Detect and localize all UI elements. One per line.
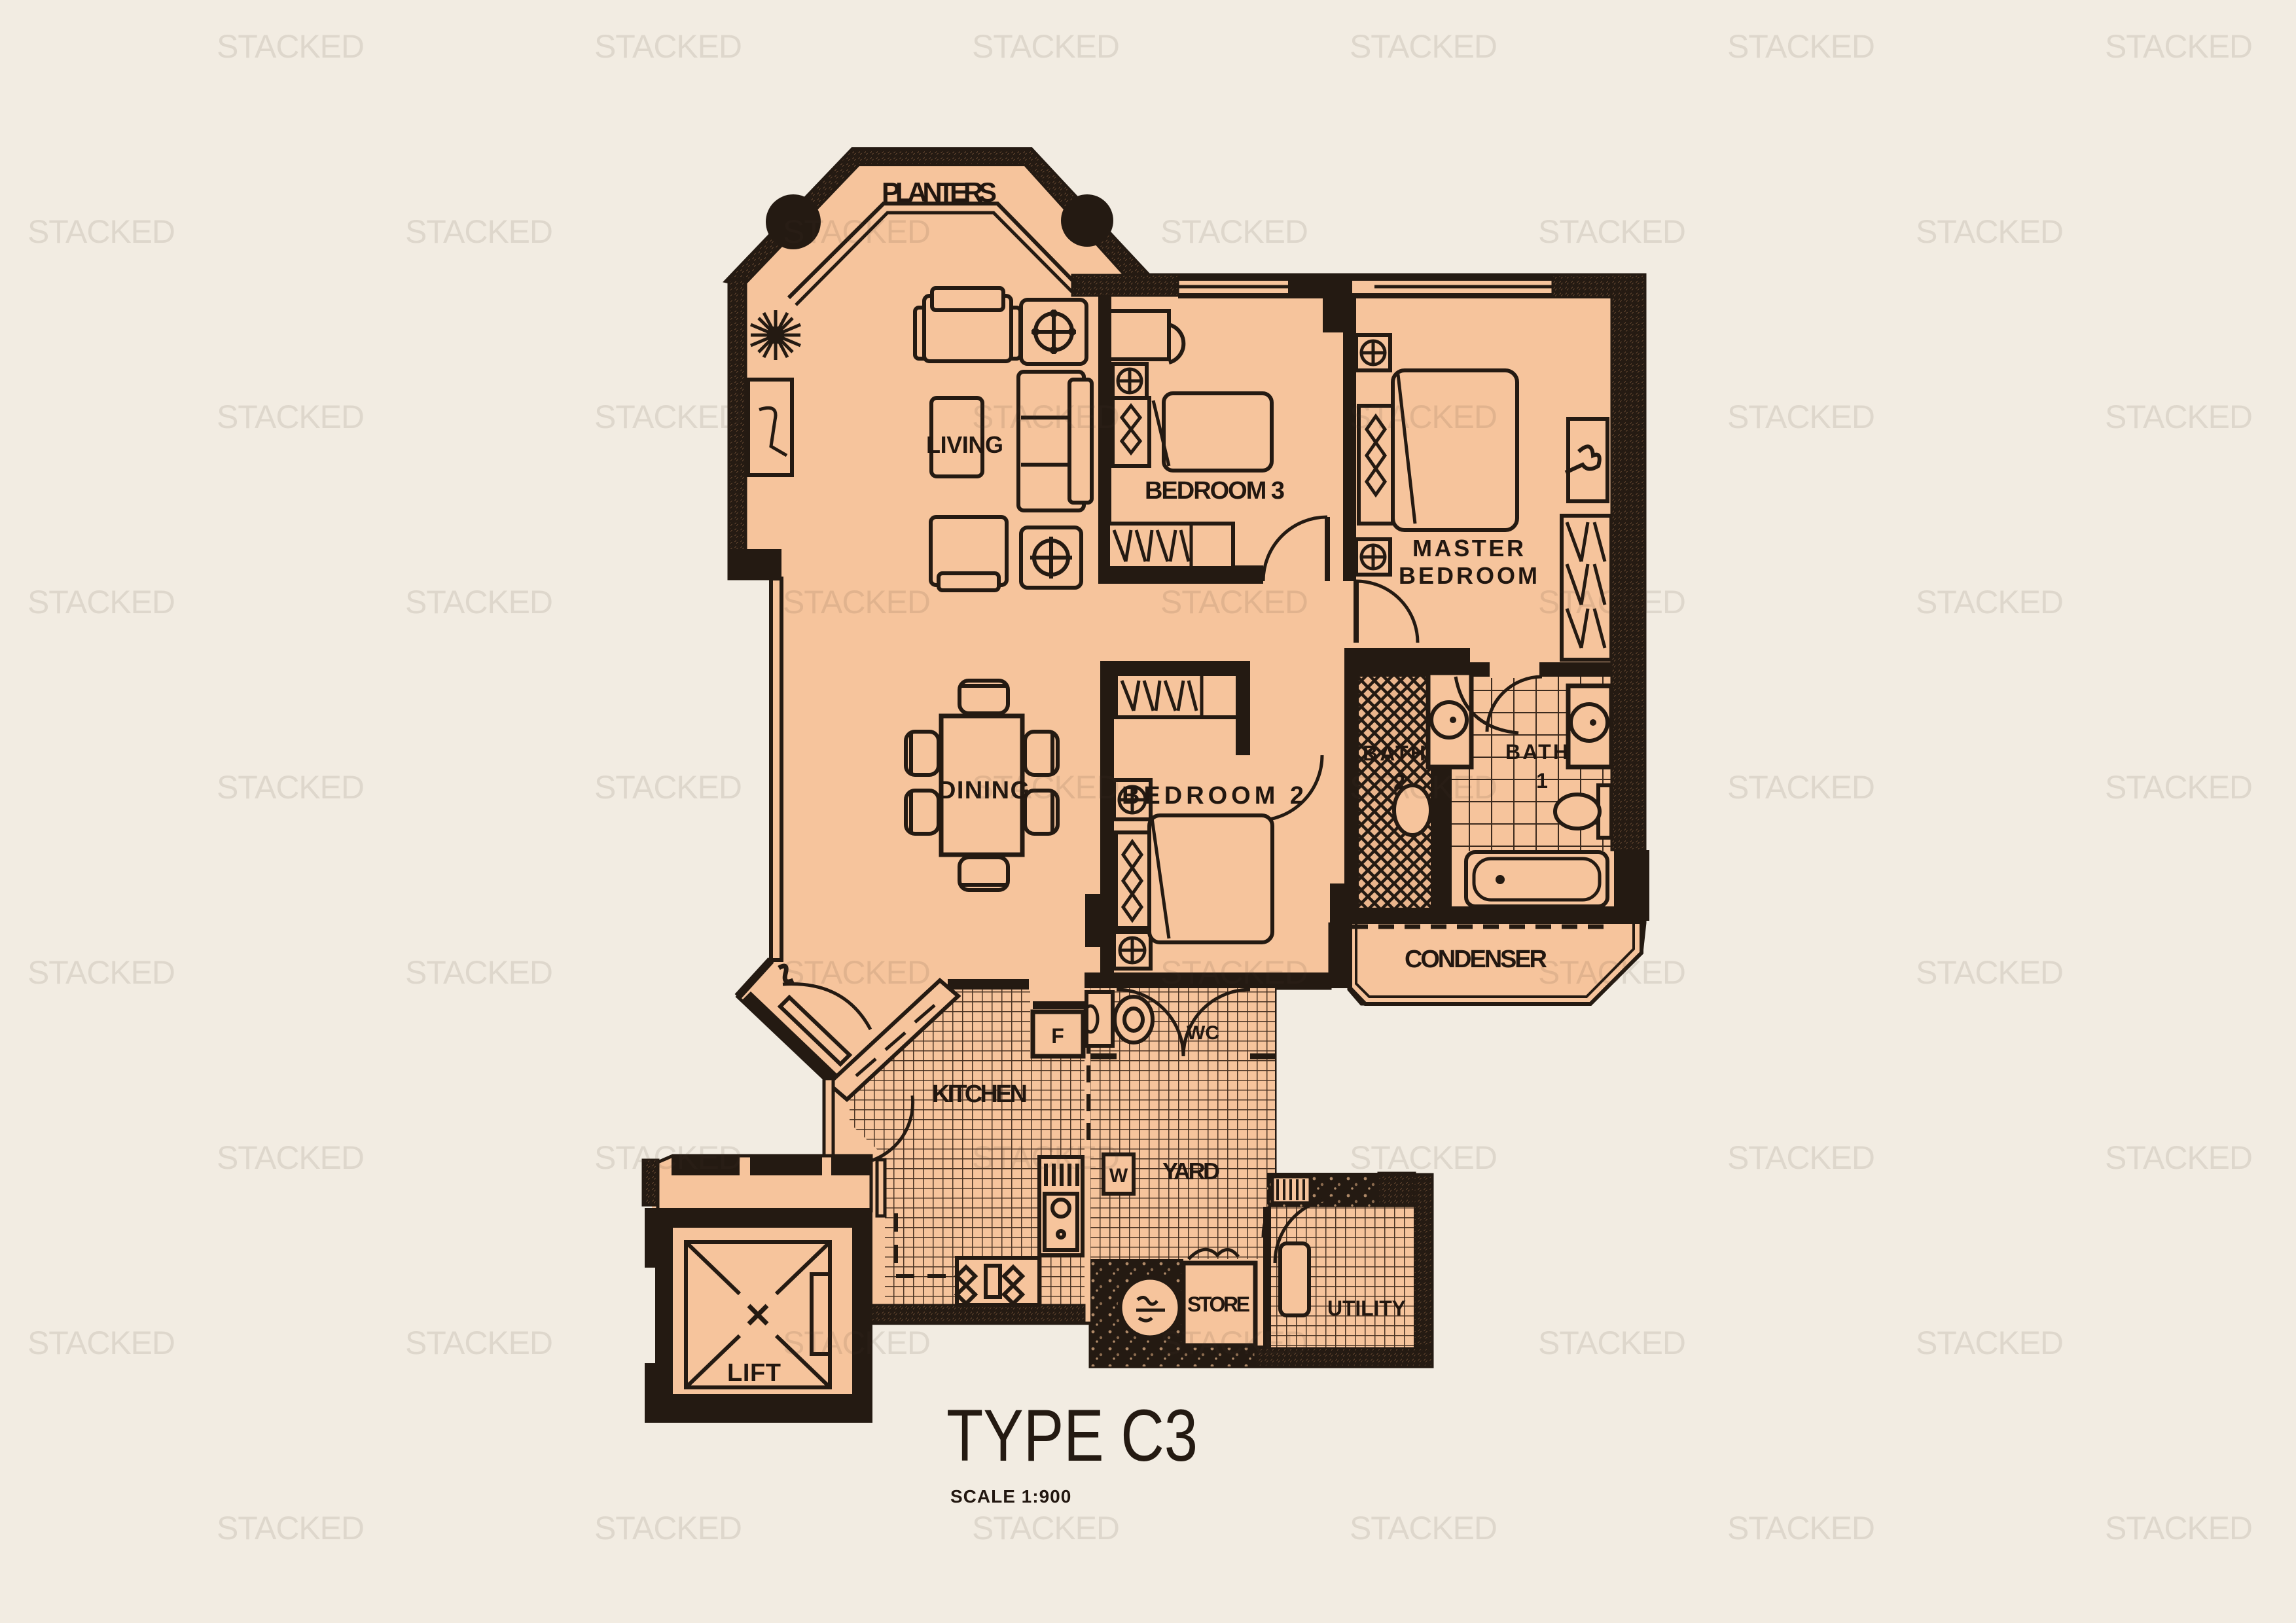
svg-text:STACKED: STACKED: [972, 1510, 1122, 1546]
svg-text:STACKED: STACKED: [27, 954, 178, 991]
svg-text:1: 1: [1536, 769, 1548, 793]
svg-text:LIVING: LIVING: [926, 431, 1003, 458]
svg-text:STACKED: STACKED: [1538, 584, 1689, 620]
svg-text:STACKED: STACKED: [27, 584, 178, 620]
svg-text:STACKED: STACKED: [217, 28, 367, 65]
svg-text:BEDROOM 3: BEDROOM 3: [1145, 477, 1285, 505]
svg-text:YARD: YARD: [1162, 1158, 1220, 1185]
svg-text:STACKED: STACKED: [405, 213, 556, 250]
svg-text:STACKED: STACKED: [1350, 769, 1500, 806]
svg-text:F: F: [1051, 1024, 1064, 1048]
svg-text:STACKED: STACKED: [405, 954, 556, 991]
svg-text:MASTER: MASTER: [1412, 535, 1524, 562]
svg-text:STACKED: STACKED: [217, 769, 367, 806]
svg-text:STACKED: STACKED: [783, 954, 933, 991]
svg-text:STACKED: STACKED: [594, 399, 745, 435]
svg-text:STACKED: STACKED: [783, 1325, 933, 1361]
svg-text:STACKED: STACKED: [783, 584, 933, 620]
svg-text:STACKED: STACKED: [594, 28, 745, 65]
svg-text:STACKED: STACKED: [405, 1325, 556, 1361]
svg-text:STACKED: STACKED: [1916, 1325, 2066, 1361]
svg-text:STACKED: STACKED: [1538, 213, 1689, 250]
svg-text:STACKED: STACKED: [1727, 1139, 1878, 1176]
svg-text:STACKED: STACKED: [2105, 1139, 2255, 1176]
svg-text:KITCHEN: KITCHEN: [932, 1080, 1028, 1108]
svg-text:STACKED: STACKED: [972, 769, 1122, 806]
svg-text:STACKED: STACKED: [27, 1325, 178, 1361]
svg-text:STACKED: STACKED: [1916, 213, 2066, 250]
svg-text:TYPE C3: TYPE C3: [946, 1395, 1198, 1476]
svg-text:CONDENSER: CONDENSER: [1405, 946, 1547, 973]
svg-text:STACKED: STACKED: [1160, 1325, 1311, 1361]
svg-text:STACKED: STACKED: [1727, 28, 1878, 65]
svg-text:STACKED: STACKED: [2105, 769, 2255, 806]
svg-text:STACKED: STACKED: [1727, 399, 1878, 435]
svg-text:STACKED: STACKED: [405, 584, 556, 620]
svg-text:STACKED: STACKED: [972, 399, 1122, 435]
svg-text:STACKED: STACKED: [27, 213, 178, 250]
svg-text:STACKED: STACKED: [594, 1139, 745, 1176]
svg-text:STACKED: STACKED: [1160, 954, 1311, 991]
svg-text:STACKED: STACKED: [1916, 954, 2066, 991]
svg-text:PLANTERS: PLANTERS: [882, 177, 997, 207]
svg-text:STACKED: STACKED: [1350, 1139, 1500, 1176]
svg-text:STACKED: STACKED: [1538, 1325, 1689, 1361]
svg-text:STACKED: STACKED: [2105, 28, 2255, 65]
svg-text:STACKED: STACKED: [594, 769, 745, 806]
svg-text:STACKED: STACKED: [1727, 1510, 1878, 1546]
svg-text:STACKED: STACKED: [972, 1139, 1122, 1176]
svg-text:STACKED: STACKED: [1350, 399, 1500, 435]
svg-text:SCALE 1:900: SCALE 1:900: [950, 1486, 1071, 1507]
svg-text:STACKED: STACKED: [783, 213, 933, 250]
svg-text:UTILITY: UTILITY: [1327, 1296, 1406, 1320]
svg-text:STACKED: STACKED: [217, 399, 367, 435]
svg-text:STACKED: STACKED: [594, 1510, 745, 1546]
svg-text:STACKED: STACKED: [1350, 28, 1500, 65]
svg-text:STACKED: STACKED: [2105, 1510, 2255, 1546]
svg-text:STACKED: STACKED: [1727, 769, 1878, 806]
svg-text:STACKED: STACKED: [1350, 1510, 1500, 1546]
svg-text:STACKED: STACKED: [972, 28, 1122, 65]
svg-text:STACKED: STACKED: [1916, 584, 2066, 620]
svg-text:STACKED: STACKED: [217, 1139, 367, 1176]
svg-text:STACKED: STACKED: [2105, 399, 2255, 435]
svg-text:STACKED: STACKED: [1538, 954, 1689, 991]
svg-text:STACKED: STACKED: [1160, 213, 1311, 250]
svg-text:STACKED: STACKED: [1160, 584, 1311, 620]
svg-text:LIFT: LIFT: [727, 1359, 781, 1387]
svg-text:STACKED: STACKED: [217, 1510, 367, 1546]
svg-text:STORE: STORE: [1187, 1293, 1250, 1316]
